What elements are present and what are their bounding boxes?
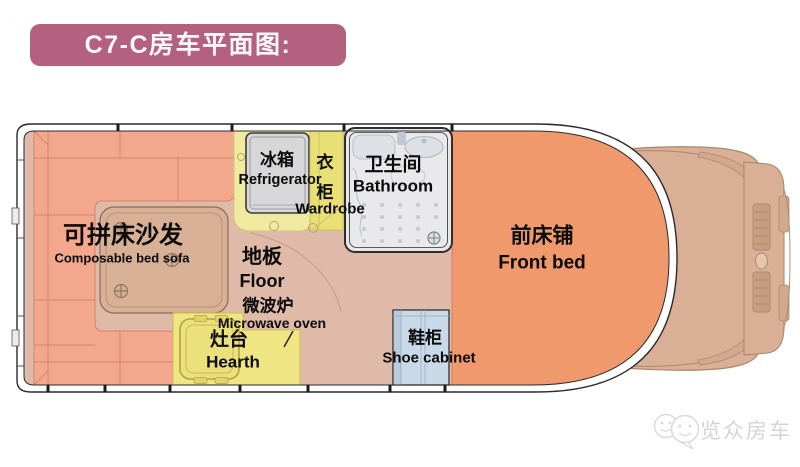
label-wardrobe-cn: 衣柜 bbox=[316, 148, 334, 208]
label-floor-en: Floor bbox=[240, 272, 285, 290]
label-wardrobe-en: Wardrobe bbox=[295, 202, 364, 217]
cab-emblem bbox=[756, 253, 768, 269]
label-hearth-cn: 灶台 bbox=[210, 331, 248, 350]
grille-upper bbox=[753, 204, 770, 250]
label-sofa-en: Composable bed sofa bbox=[54, 252, 189, 265]
label-shoe-cabinet-en: Shoe cabinet bbox=[382, 351, 475, 366]
label-refrigerator-cn: 冰箱 bbox=[260, 152, 294, 169]
label-shoe-cabinet-cn: 鞋柜 bbox=[408, 330, 442, 347]
brand-watermark: 览众房车 bbox=[700, 415, 792, 445]
label-hearth-en: Hearth bbox=[206, 354, 260, 371]
brand-bubbles-icon bbox=[655, 415, 699, 450]
label-microwave-cn: 微波炉 bbox=[243, 298, 294, 315]
shoe-cabinet-area bbox=[393, 310, 449, 385]
label-microwave-en: Microwave oven bbox=[218, 316, 326, 330]
grille-lower bbox=[753, 272, 770, 312]
label-front-bed-en: Front bed bbox=[498, 254, 586, 273]
label-front-bed-cn: 前床铺 bbox=[511, 226, 574, 247]
floorplan-page: C7-C房车平面图: bbox=[0, 0, 800, 467]
label-bathroom-cn: 卫生间 bbox=[364, 156, 421, 175]
label-floor-cn: 地板 bbox=[242, 247, 282, 267]
label-refrigerator-en: Refrigerator bbox=[239, 173, 322, 188]
label-sofa-cn: 可拼床沙发 bbox=[63, 224, 183, 248]
label-bathroom-en: Bathroom bbox=[353, 178, 433, 195]
